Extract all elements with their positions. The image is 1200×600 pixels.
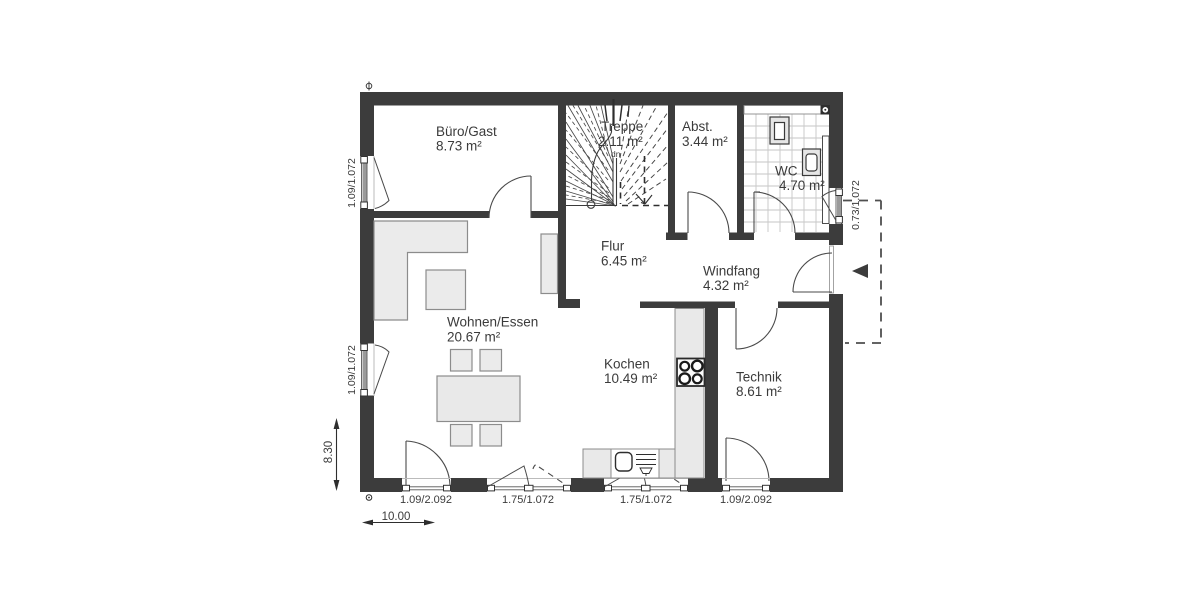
svg-text:8.30: 8.30 <box>323 441 335 463</box>
svg-text:Büro/Gast: Büro/Gast <box>436 124 497 139</box>
svg-text:Flur: Flur <box>601 239 625 254</box>
svg-text:8.61 m²: 8.61 m² <box>736 384 782 399</box>
svg-text:10.49 m²: 10.49 m² <box>604 371 658 386</box>
svg-text:Treppe: Treppe <box>601 119 643 134</box>
svg-text:1.09/1.072: 1.09/1.072 <box>346 158 358 208</box>
svg-text:3.44 m²: 3.44 m² <box>682 134 728 149</box>
svg-text:1.75/1.072: 1.75/1.072 <box>620 494 672 506</box>
svg-text:1.75/1.072: 1.75/1.072 <box>502 494 554 506</box>
svg-text:4.32 m²: 4.32 m² <box>703 278 749 293</box>
svg-text:10.00: 10.00 <box>382 511 411 523</box>
svg-text:1.09/1.072: 1.09/1.072 <box>346 345 358 395</box>
svg-text:20.67 m²: 20.67 m² <box>447 330 501 345</box>
svg-text:Technik: Technik <box>736 370 782 385</box>
svg-text:2.11 m²: 2.11 m² <box>598 134 643 149</box>
svg-text:Wohnen/Essen: Wohnen/Essen <box>447 315 538 330</box>
svg-text:dn: dn <box>611 149 621 159</box>
svg-text:Kochen: Kochen <box>604 357 650 372</box>
svg-text:Windfang: Windfang <box>703 264 760 279</box>
svg-text:1.09/2.092: 1.09/2.092 <box>720 494 772 506</box>
svg-text:WC: WC <box>775 164 798 179</box>
svg-text:8.73 m²: 8.73 m² <box>436 139 482 154</box>
svg-text:6.45 m²: 6.45 m² <box>601 254 647 269</box>
svg-text:4.70 m²: 4.70 m² <box>779 178 825 193</box>
svg-text:Abst.: Abst. <box>682 119 713 134</box>
svg-text:0.73/1.072: 0.73/1.072 <box>850 180 862 230</box>
svg-text:1.09/2.092: 1.09/2.092 <box>400 494 452 506</box>
